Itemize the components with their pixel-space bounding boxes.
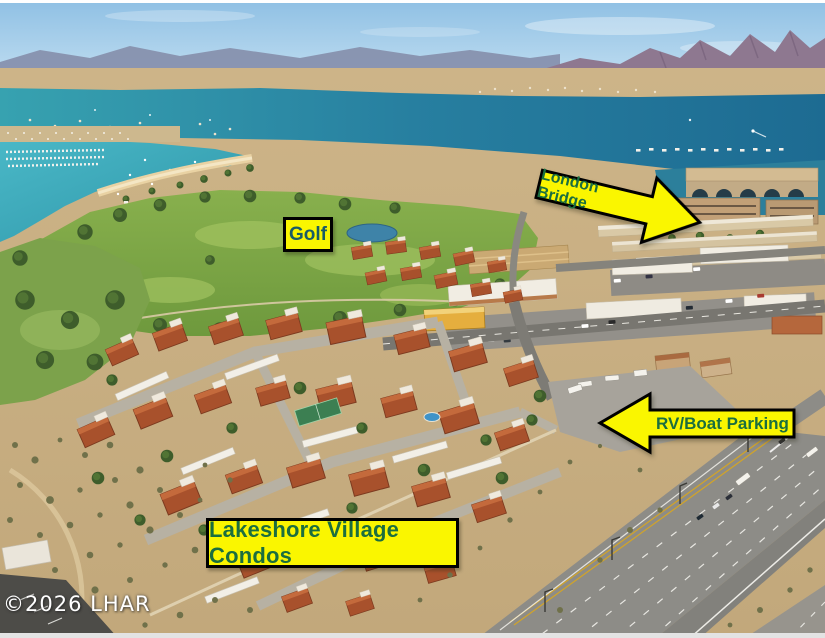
- photo-border-top: [0, 0, 825, 3]
- golf-pond: [347, 224, 397, 242]
- photo-border-bottom: [0, 633, 825, 638]
- aerial-photo: London Bridge Golf RV/Boat Parking Lakes…: [0, 0, 825, 638]
- lakeshore-condos-callout: Lakeshore Village Condos: [206, 518, 459, 568]
- rv-boat-parking-callout: RV/Boat Parking: [597, 390, 797, 456]
- watermark: ©2026 LHAR: [3, 592, 151, 616]
- golf-callout: Golf: [283, 217, 333, 252]
- pool: [424, 413, 440, 422]
- golf-label: Golf: [289, 224, 327, 246]
- rv-boat-parking-label: RV/Boat Parking: [652, 410, 793, 437]
- lakeshore-condos-label: Lakeshore Village Condos: [209, 517, 456, 569]
